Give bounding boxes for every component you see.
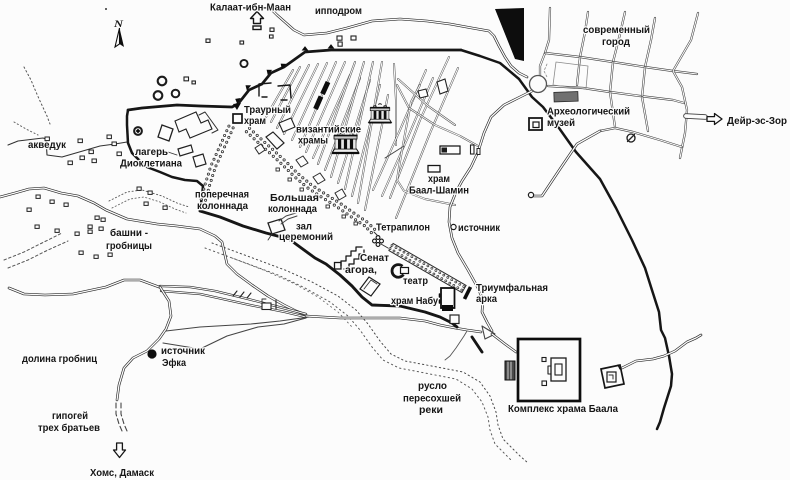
svg-text:храмы: храмы [298,136,328,147]
svg-text:музей: музей [547,118,575,129]
svg-text:источник: источник [458,223,501,234]
svg-text:Большая: Большая [270,193,319,204]
svg-text:Тетрапилон: Тетрапилон [376,223,430,234]
svg-text:пересохшей: пересохшей [403,394,461,405]
svg-text:театр: театр [403,276,428,287]
svg-text:реки: реки [419,405,443,416]
svg-text:храм: храм [428,174,450,185]
svg-text:Триумфальная: Триумфальная [476,282,548,294]
svg-text:источник: источник [161,346,206,357]
svg-text:лагерь: лагерь [135,147,168,158]
svg-text:колоннада: колоннада [197,201,248,212]
svg-text:Сенат: Сенат [360,253,389,264]
svg-text:гипогей: гипогей [52,411,88,422]
svg-text:гробницы: гробницы [106,240,152,252]
svg-text:русло: русло [418,381,447,392]
svg-text:Диоклетиана: Диоклетиана [120,159,182,170]
svg-text:Баал-Шамин: Баал-Шамин [409,186,469,197]
svg-text:Хомс, Дамаск: Хомс, Дамаск [90,468,155,479]
svg-text:колоннада: колоннада [268,204,317,215]
svg-text:Археологический: Археологический [547,107,630,118]
svg-text:ипподром: ипподром [315,6,362,17]
svg-text:агора,: агора, [345,265,377,276]
svg-text:храм Набу: храм Набу [391,295,438,307]
svg-text:поперечная: поперечная [195,190,249,201]
svg-text:Калаат-ибн-Маан: Калаат-ибн-Маан [210,2,291,14]
svg-text:акведук: акведук [28,140,67,151]
svg-text:башни -: башни - [110,227,149,239]
svg-text:долина гробниц: долина гробниц [22,353,98,365]
svg-text:Комплекс храма Баала: Комплекс храма Баала [508,404,618,415]
svg-text:церемоний: церемоний [279,232,333,243]
svg-text:арка: арка [476,294,497,305]
svg-text:византийские: византийские [296,125,361,136]
svg-text:современный: современный [583,25,650,36]
svg-text:Траурный: Траурный [244,105,291,116]
svg-text:Эфка: Эфка [162,357,186,369]
svg-text:N: N [113,20,125,30]
svg-text:трех братьев: трех братьев [38,422,100,434]
svg-text:город: город [602,37,630,48]
svg-text:зал: зал [296,222,312,233]
svg-text:храм: храм [244,116,266,127]
svg-text:Дейр-эс-Зор: Дейр-эс-Зор [727,116,787,127]
